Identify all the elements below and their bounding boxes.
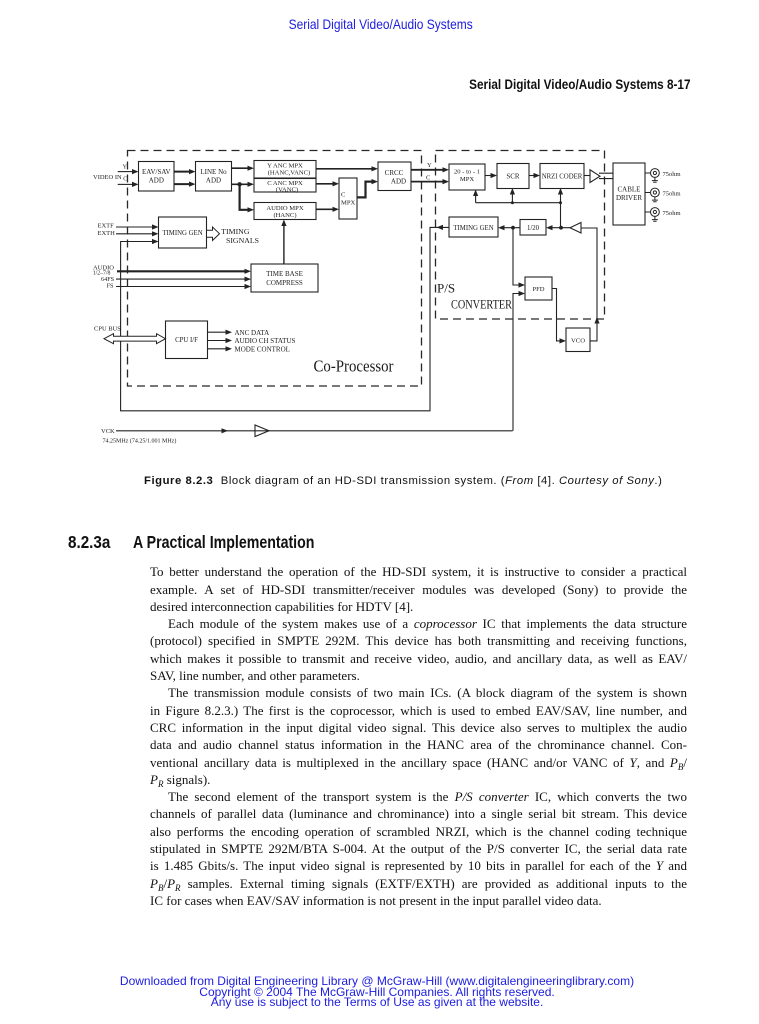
svg-text:Y: Y bbox=[123, 165, 128, 171]
svg-text:SCR: SCR bbox=[506, 173, 520, 181]
svg-text:NRZI CODER: NRZI CODER bbox=[542, 174, 583, 181]
svg-text:(HANC): (HANC) bbox=[273, 212, 296, 219]
svg-text:COMPRESS: COMPRESS bbox=[266, 279, 303, 287]
svg-text:EAV/SAV: EAV/SAV bbox=[142, 168, 171, 176]
svg-text:P/S: P/S bbox=[437, 281, 455, 296]
svg-text:74.25MHz (74.25/1.001 MHz): 74.25MHz (74.25/1.001 MHz) bbox=[103, 438, 177, 445]
svg-text:(VANC): (VANC) bbox=[276, 186, 298, 193]
svg-text:VIDEO IN: VIDEO IN bbox=[93, 174, 122, 181]
svg-text:EXTH: EXTH bbox=[98, 230, 116, 237]
svg-text:C: C bbox=[341, 191, 346, 198]
svg-text:VCO: VCO bbox=[571, 338, 585, 345]
svg-text:SIGNALS: SIGNALS bbox=[226, 236, 259, 245]
svg-text:PFD: PFD bbox=[532, 286, 544, 293]
svg-text:ADD: ADD bbox=[206, 176, 221, 184]
svg-text:Co-Processor: Co-Processor bbox=[314, 357, 394, 376]
svg-text:75ohm: 75ohm bbox=[663, 171, 681, 178]
svg-text:TIMING: TIMING bbox=[221, 227, 250, 236]
svg-text:DRIVER: DRIVER bbox=[616, 194, 642, 202]
svg-text:CRCC: CRCC bbox=[385, 169, 404, 177]
svg-text:CABLE: CABLE bbox=[618, 185, 641, 193]
svg-text:Y ANC MPX: Y ANC MPX bbox=[267, 163, 303, 170]
svg-text:MODE CONTROL: MODE CONTROL bbox=[235, 346, 290, 354]
svg-text:FS: FS bbox=[107, 283, 114, 290]
svg-text:(HANC,VANC): (HANC,VANC) bbox=[268, 170, 311, 177]
svg-text:1/20: 1/20 bbox=[527, 225, 540, 232]
svg-text:75ohm: 75ohm bbox=[663, 210, 681, 217]
svg-text:ADD: ADD bbox=[149, 176, 164, 184]
svg-text:AUDIO MPX: AUDIO MPX bbox=[266, 205, 303, 212]
svg-text:C: C bbox=[123, 177, 127, 183]
svg-text:ADD: ADD bbox=[391, 177, 406, 185]
svg-text:CPU I/F: CPU I/F bbox=[175, 337, 198, 344]
svg-text:MPX: MPX bbox=[341, 199, 356, 206]
svg-text:EXTF: EXTF bbox=[98, 223, 115, 230]
svg-text:TIMING GEN: TIMING GEN bbox=[453, 225, 493, 232]
svg-text:CONVERTER: CONVERTER bbox=[451, 297, 512, 312]
svg-text:LINE No: LINE No bbox=[200, 168, 227, 176]
svg-text:Y: Y bbox=[427, 162, 432, 169]
svg-text:CPU BUS: CPU BUS bbox=[94, 326, 121, 333]
svg-text:VCK: VCK bbox=[101, 428, 115, 435]
svg-text:75ohm: 75ohm bbox=[663, 191, 681, 198]
svg-text:ANC DATA: ANC DATA bbox=[235, 329, 270, 337]
svg-text:AUDIO CH STATUS: AUDIO CH STATUS bbox=[235, 337, 296, 345]
svg-text:MPX: MPX bbox=[460, 176, 475, 183]
svg-text:TIMING GEN: TIMING GEN bbox=[162, 230, 202, 237]
svg-text:20 - to - 1: 20 - to - 1 bbox=[454, 168, 480, 175]
svg-text:TIME BASE: TIME BASE bbox=[266, 270, 303, 278]
svg-text:C: C bbox=[426, 175, 430, 182]
